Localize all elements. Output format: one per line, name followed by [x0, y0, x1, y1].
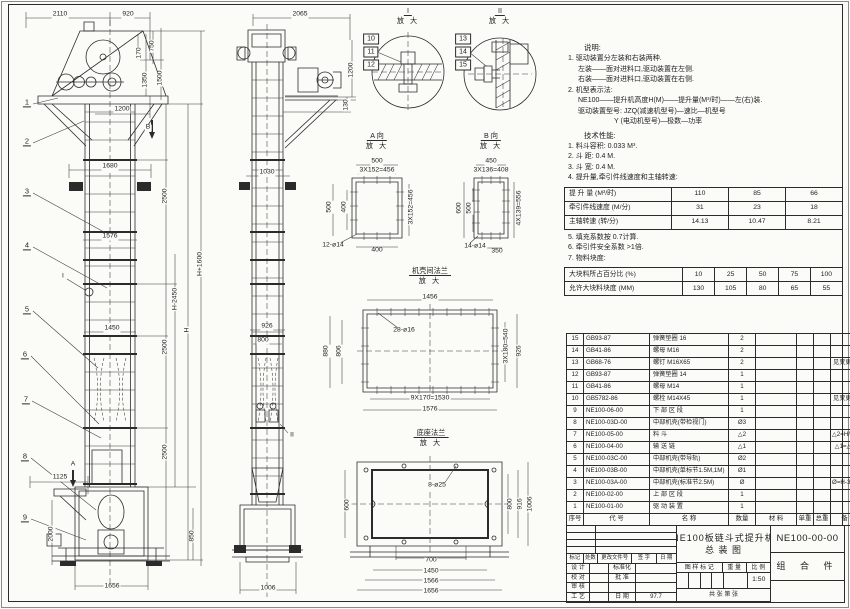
- bom-cell: 中部机壳(带检视门): [650, 418, 729, 430]
- bom-cell: [756, 466, 797, 478]
- bom-cell: [831, 406, 850, 418]
- dim-label: 920: [121, 12, 134, 19]
- bom-header: 数量: [729, 514, 756, 526]
- part-balloon-boxed: 11: [363, 47, 378, 58]
- spec-row: 允许大块料块度 (MM)130105806555: [565, 282, 843, 296]
- bom-cell: [797, 418, 814, 430]
- dim-label: 3X152=456: [409, 189, 416, 226]
- bom-cell: NE100-03B-00: [584, 466, 650, 478]
- bom-cell: [797, 382, 814, 394]
- detail-I: [372, 32, 444, 112]
- bom-cell: [831, 454, 850, 466]
- dim-label: 12-ø14: [321, 243, 345, 250]
- spec-value: 110: [671, 187, 728, 201]
- view-title-name: 底座法兰: [414, 428, 449, 438]
- bom-cell: [831, 334, 850, 346]
- bom-cell: 15: [567, 334, 584, 346]
- revision-cell: [596, 526, 677, 533]
- bom-cell: [814, 430, 831, 442]
- dim-label: 1576: [101, 234, 118, 241]
- title-block-blank: [771, 581, 844, 602]
- dim-label: 850: [190, 529, 197, 542]
- bom-cell: NE100-03A-00: [584, 478, 650, 490]
- bom-header: 材 料: [756, 514, 797, 526]
- tech-lines-2: 5. 填充系数按 0.7计算.6. 牵引件安全系数 >1倍.7. 物料块度:: [562, 233, 843, 265]
- spec-value: 8.21: [786, 215, 843, 229]
- role-signature: [590, 574, 609, 584]
- bom-row: 2NE100-02-00上 部 区 段1: [567, 490, 850, 502]
- role-value: [636, 574, 677, 584]
- spec-row: 大块料所占百分比 (%)10255075100: [565, 268, 843, 282]
- bom-cell: NE100-02-00: [584, 490, 650, 502]
- bom-cell: GB41-86: [584, 346, 650, 358]
- spec-value: 23: [728, 201, 785, 215]
- bom-cell: [756, 502, 797, 514]
- bom-cell: 见变更通单: [831, 358, 850, 370]
- mark-box: [677, 573, 689, 589]
- spec-label: 大块料所占百分比 (%): [565, 268, 683, 282]
- view-title-name: B 向: [481, 131, 501, 141]
- view-title-name: I: [404, 6, 412, 16]
- mark-label: 图 样 标 记: [677, 563, 723, 573]
- bom-cell: NE100-06-00: [584, 406, 650, 418]
- view-title: A 向放 大: [366, 131, 388, 151]
- spec-value: 85: [728, 187, 785, 201]
- side-view: [232, 14, 356, 600]
- bom-cell: GB93-87: [584, 370, 650, 382]
- bom-cell: 12: [567, 370, 584, 382]
- bom-cell: GB41-86: [584, 382, 650, 394]
- role-label: 审 核: [567, 583, 590, 593]
- role-label: 设 计: [567, 564, 590, 574]
- bom-row: 12GB93-87弹簧垫圈 141: [567, 370, 850, 382]
- bom-cell: 1: [729, 370, 756, 382]
- revision-rows: [567, 526, 677, 554]
- bom-row: 6NE100-04-00输 送 链△1△1=△2X4: [567, 442, 850, 454]
- revision-cell: [567, 540, 596, 547]
- bom-cell: 3: [567, 478, 584, 490]
- bom-row: 9NE100-06-00下 部 区 段1: [567, 406, 850, 418]
- bom-row: 14GB41-86螺母 M162: [567, 346, 850, 358]
- part-balloon-boxed: 15: [455, 60, 471, 71]
- bom-cell: NE100-05-00: [584, 430, 650, 442]
- bom-header: 单重: [797, 514, 814, 526]
- bom-row: 11GB41-86螺母 M141: [567, 382, 850, 394]
- dim-label: 2500: [163, 338, 170, 355]
- bom-cell: △2=H/0.2+5.75: [831, 430, 850, 442]
- spec-value: 31: [671, 201, 728, 215]
- bom-cell: 1: [729, 382, 756, 394]
- dim-label: 1680: [101, 164, 118, 171]
- bom-header: 备 注: [831, 514, 850, 526]
- spec-value: 50: [747, 268, 779, 282]
- bom-cell: 螺钉 M16X65: [650, 358, 729, 370]
- bom-cell: [814, 406, 831, 418]
- bom-cell: [797, 478, 814, 490]
- bom-cell: 螺栓 M14X45: [650, 394, 729, 406]
- bom-cell: 5: [567, 454, 584, 466]
- approval-row: 校 对批 准: [567, 574, 677, 584]
- bom-cell: [756, 430, 797, 442]
- spec-value: 75: [779, 268, 811, 282]
- dim-label: 1456: [421, 295, 438, 302]
- dim-label: 1350: [143, 71, 150, 88]
- bom-header: 总重: [814, 514, 831, 526]
- bom-row: 3NE100-03A-00中部机壳(标准节2.5M)ØØ=H-3.15/2.5: [567, 478, 850, 490]
- part-balloon: 8: [21, 452, 29, 461]
- scale-label: 比 例: [747, 563, 771, 573]
- view-title: B 向放 大: [480, 131, 502, 151]
- bom-cell: 螺母 M14: [650, 382, 729, 394]
- bom-cell: 中部机壳(带导轨): [650, 454, 729, 466]
- view-title-name: A 向: [367, 131, 387, 141]
- dim-label: 916: [518, 497, 525, 510]
- bom-cell: [756, 346, 797, 358]
- bom-row: 5NE100-03C-00中部机壳(带导轨)Ø2: [567, 454, 850, 466]
- bom-cell: [756, 394, 797, 406]
- revision-header: 签 字: [632, 554, 656, 564]
- part-balloon: 1: [23, 98, 31, 107]
- bom-header-row: 序号代 号名 称数量材 料单重总重备 注: [567, 514, 850, 526]
- bom-cell: GB93-87: [584, 334, 650, 346]
- dim-label: 3X180=540: [504, 328, 511, 365]
- spec-value: 66: [786, 187, 843, 201]
- bom-cell: 输 送 链: [650, 442, 729, 454]
- bom-cell: 1: [729, 490, 756, 502]
- role-signature: [590, 593, 609, 603]
- revision-header-row: 标记处数更改文件号签 字日 期: [567, 554, 677, 564]
- bom-cell: [814, 442, 831, 454]
- part-balloon-boxed: 14: [455, 47, 471, 58]
- role-label: 工 艺: [567, 593, 590, 603]
- approval-rows: 设 计标准化校 对批 准审 核工 艺日 期97.7: [567, 564, 677, 602]
- note-line: 左装——面对进料口,驱动装置在左侧.: [578, 65, 843, 76]
- bom-cell: 10: [567, 394, 584, 406]
- dim-label: II: [289, 433, 295, 440]
- dim-label: H-2450: [173, 287, 180, 311]
- bom-cell: Ø: [729, 478, 756, 490]
- title-block-middle: NE100板链斗式提升机 总 装 图 图 样 标 记 重 量 比 例 1:50 …: [677, 526, 771, 602]
- dim-label: 1450: [422, 569, 439, 576]
- bom-cell: [756, 418, 797, 430]
- dim-label: 130: [344, 98, 351, 111]
- part-balloon: 9: [21, 513, 29, 522]
- notes-lines: 1. 驱动装置分左装和右装两种.左装——面对进料口,驱动装置在左侧.右装——面对…: [562, 54, 843, 128]
- bom-cell: [797, 358, 814, 370]
- bom-cell: 见变更通单: [831, 394, 850, 406]
- approval-row: 设 计标准化: [567, 564, 677, 574]
- lump-size-table: 大块料所占百分比 (%)10255075100允许大块料块度 (MM)13010…: [564, 267, 843, 296]
- dim-label: 400: [370, 248, 383, 255]
- bom-cell: 弹簧垫圈 14: [650, 370, 729, 382]
- part-balloon-boxed: 12: [363, 60, 379, 71]
- bom-cell: [814, 418, 831, 430]
- drawing-sheet: 2110920170750135015001200B168025001576H-…: [0, 0, 850, 609]
- bom-cell: 2: [729, 334, 756, 346]
- bom-cell: Ø2: [729, 454, 756, 466]
- bom-cell: [756, 442, 797, 454]
- bom-cell: 14: [567, 346, 584, 358]
- part-balloon: 3: [23, 187, 31, 196]
- spec-label: 牵引件线速度 (M/分): [565, 201, 672, 215]
- weight-label: 重 量: [723, 563, 747, 573]
- bom-cell: [814, 454, 831, 466]
- dim-label: 1450: [103, 326, 120, 333]
- spec-value: 25: [715, 268, 747, 282]
- bom-cell: △2: [729, 430, 756, 442]
- note-line: 驱动装置型号: JZQ(减速机型号)—速比—机型号: [578, 107, 843, 118]
- bom-cell: [814, 490, 831, 502]
- bom-cell: 料 斗: [650, 430, 729, 442]
- spec-row: 主轴转速 (转/分)14.1310.478.21: [565, 215, 843, 229]
- bom-cell: NE100-03C-00: [584, 454, 650, 466]
- bom-cell: [797, 394, 814, 406]
- revision-cell: [567, 547, 596, 554]
- dim-label: 1200: [349, 61, 356, 78]
- bom-cell: △1: [729, 442, 756, 454]
- dim-label: 600: [457, 201, 464, 214]
- note-line: 3. 斗 宽: 0.4 M.: [568, 163, 843, 174]
- dim-label: 1566: [422, 579, 439, 586]
- bom-cell: [797, 454, 814, 466]
- dim-label: 3X152=456: [359, 168, 396, 175]
- dim-label: 500: [370, 159, 383, 166]
- dim-label: 2000: [49, 525, 56, 542]
- bom-cell: △1=△2X4: [831, 442, 850, 454]
- spec-row: 提 升 量 (M³/时)1108566: [565, 187, 843, 201]
- bom-cell: [814, 394, 831, 406]
- bom-cell: [797, 442, 814, 454]
- revision-cell: [596, 540, 677, 547]
- bom-row: 4NE100-03B-00中部机壳(单标节1.5M,1M)Ø1: [567, 466, 850, 478]
- bom-cell: NE100-01-00: [584, 502, 650, 514]
- bom-header: 序号: [567, 514, 584, 526]
- revision-header: 日 期: [657, 554, 677, 564]
- drawing-title-line1: NE100板链斗式提升机: [677, 534, 771, 543]
- dim-label: 800: [508, 497, 515, 510]
- revision-row: [567, 547, 677, 554]
- bom-cell: [797, 502, 814, 514]
- view-title-scale: 放 大: [480, 141, 502, 150]
- spec-value: 100: [810, 268, 842, 282]
- bom-cell: [831, 490, 850, 502]
- view-title: I放 大: [397, 6, 419, 26]
- dim-label: 1576: [421, 407, 438, 414]
- bom-cell: 1: [729, 394, 756, 406]
- notes-panel: 说明: 1. 驱动装置分左装和右装两种.左装——面对进料口,驱动装置在左侧.右装…: [562, 40, 843, 299]
- dim-label: 800: [256, 338, 269, 345]
- dim-label: 14-ø14: [463, 244, 487, 251]
- role-signature: [590, 583, 609, 593]
- spec-row: 牵引件线速度 (M/分)312318: [565, 201, 843, 215]
- lift-capacity-table: 提 升 量 (M³/时)1108566牵引件线速度 (M/分)312318主轴转…: [564, 187, 843, 230]
- spec-value: 14.13: [671, 215, 728, 229]
- bom-cell: 下 部 区 段: [650, 406, 729, 418]
- bom-cell: [814, 382, 831, 394]
- sheet-count: 共 张 第 张: [677, 589, 771, 602]
- bom-cell: 11: [567, 382, 584, 394]
- view-title: 机壳间法兰放 大: [409, 266, 451, 286]
- role-label: 校 对: [567, 574, 590, 584]
- dim-label: 1030: [258, 170, 275, 177]
- spec-value: 130: [682, 282, 714, 296]
- bom-cell: GB68-76: [584, 358, 650, 370]
- role-value: [636, 564, 677, 574]
- bom-cell: Ø1: [729, 466, 756, 478]
- bom-row: 7NE100-05-00料 斗△2△2=H/0.2+5.75: [567, 430, 850, 442]
- bom-row: 13GB68-76螺钉 M16X652见变更通单: [567, 358, 850, 370]
- dim-label: 8-ø25: [427, 483, 447, 490]
- bom-cell: [831, 502, 850, 514]
- dim-label: 1656: [103, 584, 120, 591]
- spec-value: 10: [682, 268, 714, 282]
- bom-cell: [814, 466, 831, 478]
- title-block-right: NE100-00-00 组 合 件: [771, 526, 844, 602]
- bom-cell: [814, 346, 831, 358]
- spec-value: 80: [747, 282, 779, 296]
- bom-cell: Ø3: [729, 418, 756, 430]
- dim-label: 2500: [163, 187, 170, 204]
- bom-cell: 2: [729, 358, 756, 370]
- bom-cell: [814, 478, 831, 490]
- tech-title: 技术性能:: [584, 130, 843, 141]
- bom-cell: NE100-04-00: [584, 442, 650, 454]
- bom-row: 8NE100-03D-00中部机壳(带检视门)Ø3: [567, 418, 850, 430]
- bom-cell: 驱 动 装 置: [650, 502, 729, 514]
- bom-row: 15GB93-87弹簧垫圈 162: [567, 334, 850, 346]
- dim-label: 880: [324, 344, 331, 357]
- part-balloon-boxed: 13: [455, 34, 471, 45]
- mark-box: [689, 573, 701, 589]
- spec-value: 18: [786, 201, 843, 215]
- bom-cell: [756, 490, 797, 502]
- bom-cell: [831, 382, 850, 394]
- revision-header: 更改文件号: [598, 554, 632, 564]
- note-line: 4. 提升量,牵引件线速度和主轴转速:: [568, 173, 843, 184]
- view-title: II放 大: [489, 6, 511, 26]
- dim-label: 500: [467, 201, 474, 214]
- revision-row: [567, 540, 677, 547]
- mark-box: [701, 573, 713, 589]
- spec-value: 65: [779, 282, 811, 296]
- revision-cell: [596, 533, 677, 540]
- part-balloon: 7: [22, 395, 30, 404]
- approval-row: 审 核: [567, 583, 677, 593]
- bom-header: 代 号: [584, 514, 650, 526]
- bom-cell: [756, 478, 797, 490]
- bom-cell: [797, 334, 814, 346]
- dim-label: 350: [490, 249, 503, 256]
- bom-cell: 1: [567, 502, 584, 514]
- revision-row: [567, 533, 677, 540]
- bom-cell: [756, 454, 797, 466]
- note-line: 2. 斗 距: 0.4 M.: [568, 152, 843, 163]
- part-balloon: 4: [23, 241, 31, 250]
- note-line: 右装——面对进料口,驱动装置在右侧.: [578, 75, 843, 86]
- spec-value: 55: [810, 282, 842, 296]
- dim-label: H+1600: [198, 251, 205, 277]
- part-balloon: 5: [23, 305, 31, 314]
- dim-label: 806: [337, 344, 344, 357]
- dim-label: 700: [424, 558, 437, 565]
- bom-cell: [797, 430, 814, 442]
- bom-cell: [756, 406, 797, 418]
- bom-cell: 2: [729, 346, 756, 358]
- bom-cell: [756, 334, 797, 346]
- bom-cell: [831, 466, 850, 478]
- weight-value: [724, 573, 747, 589]
- role-label-2: 批 准: [609, 574, 636, 584]
- view-title-scale: 放 大: [397, 16, 419, 25]
- dim-label: 28-ø16: [392, 328, 416, 335]
- dim-label: 2110: [52, 12, 69, 19]
- bom-cell: 上 部 区 段: [650, 490, 729, 502]
- note-line: 2. 机型表示法:: [568, 86, 843, 97]
- bom-cell: [831, 370, 850, 382]
- spec-value: 10.47: [728, 215, 785, 229]
- notes-title: 说明:: [584, 42, 843, 53]
- bom-cell: 13: [567, 358, 584, 370]
- view-title-name: II: [495, 6, 505, 16]
- bom-cell: 2: [567, 490, 584, 502]
- bom-cell: 6: [567, 442, 584, 454]
- spec-label: 允许大块料块度 (MM): [565, 282, 683, 296]
- dim-label: 4X139=556: [517, 190, 524, 227]
- dim-label: 1006: [528, 495, 535, 512]
- note-line: 5. 填充系数按 0.7计算.: [568, 233, 843, 244]
- bom-cell: 4: [567, 466, 584, 478]
- mark-box: [712, 573, 724, 589]
- dim-label: 1500: [158, 69, 165, 86]
- bom-cell: [814, 502, 831, 514]
- dim-label: 450: [484, 159, 497, 166]
- bom-cell: [797, 490, 814, 502]
- dim-label: A: [70, 462, 77, 469]
- part-balloon: 2: [23, 137, 31, 146]
- dim-label: 1200: [113, 107, 130, 114]
- part-balloon-boxed: 10: [363, 34, 379, 45]
- bom-row: 1NE100-01-00驱 动 装 置1: [567, 502, 850, 514]
- casing-flange-detail: [330, 300, 517, 410]
- drawing-title: NE100板链斗式提升机 总 装 图: [677, 526, 771, 563]
- title-block-left: 标记处数更改文件号签 字日 期 设 计标准化校 对批 准审 核工 艺日 期97.…: [567, 526, 677, 602]
- note-line: NE100——提升机高度H(M)——提升量(M³/时)——左(右)装.: [578, 96, 843, 107]
- bom-cell: [814, 334, 831, 346]
- bom-cell: [797, 406, 814, 418]
- dim-label: 926: [517, 344, 524, 357]
- approval-row: 工 艺日 期97.7: [567, 593, 677, 603]
- note-line: 7. 物料块度:: [568, 254, 843, 265]
- dim-label: 400: [342, 200, 349, 213]
- dim-label: 2500: [163, 443, 170, 460]
- dim-label: 9X170=1530: [410, 396, 451, 403]
- bom-cell: [797, 370, 814, 382]
- view-title: 底座法兰放 大: [414, 428, 449, 448]
- bom-cell: [756, 370, 797, 382]
- revision-row: [567, 526, 677, 533]
- revision-header: 标记: [567, 554, 584, 564]
- role-value: 97.7: [636, 593, 677, 603]
- bom-cell: [814, 370, 831, 382]
- dim-label: 750: [150, 39, 157, 52]
- drawing-number: NE100-00-00: [771, 526, 844, 553]
- bom-cell: 中部机壳(单标节1.5M,1M): [650, 466, 729, 478]
- role-value: [636, 583, 677, 593]
- dim-label: I: [61, 274, 65, 281]
- role-label-2: [609, 583, 636, 593]
- bom-cell: NE100-03D-00: [584, 418, 650, 430]
- bom-cell: 螺母 M16: [650, 346, 729, 358]
